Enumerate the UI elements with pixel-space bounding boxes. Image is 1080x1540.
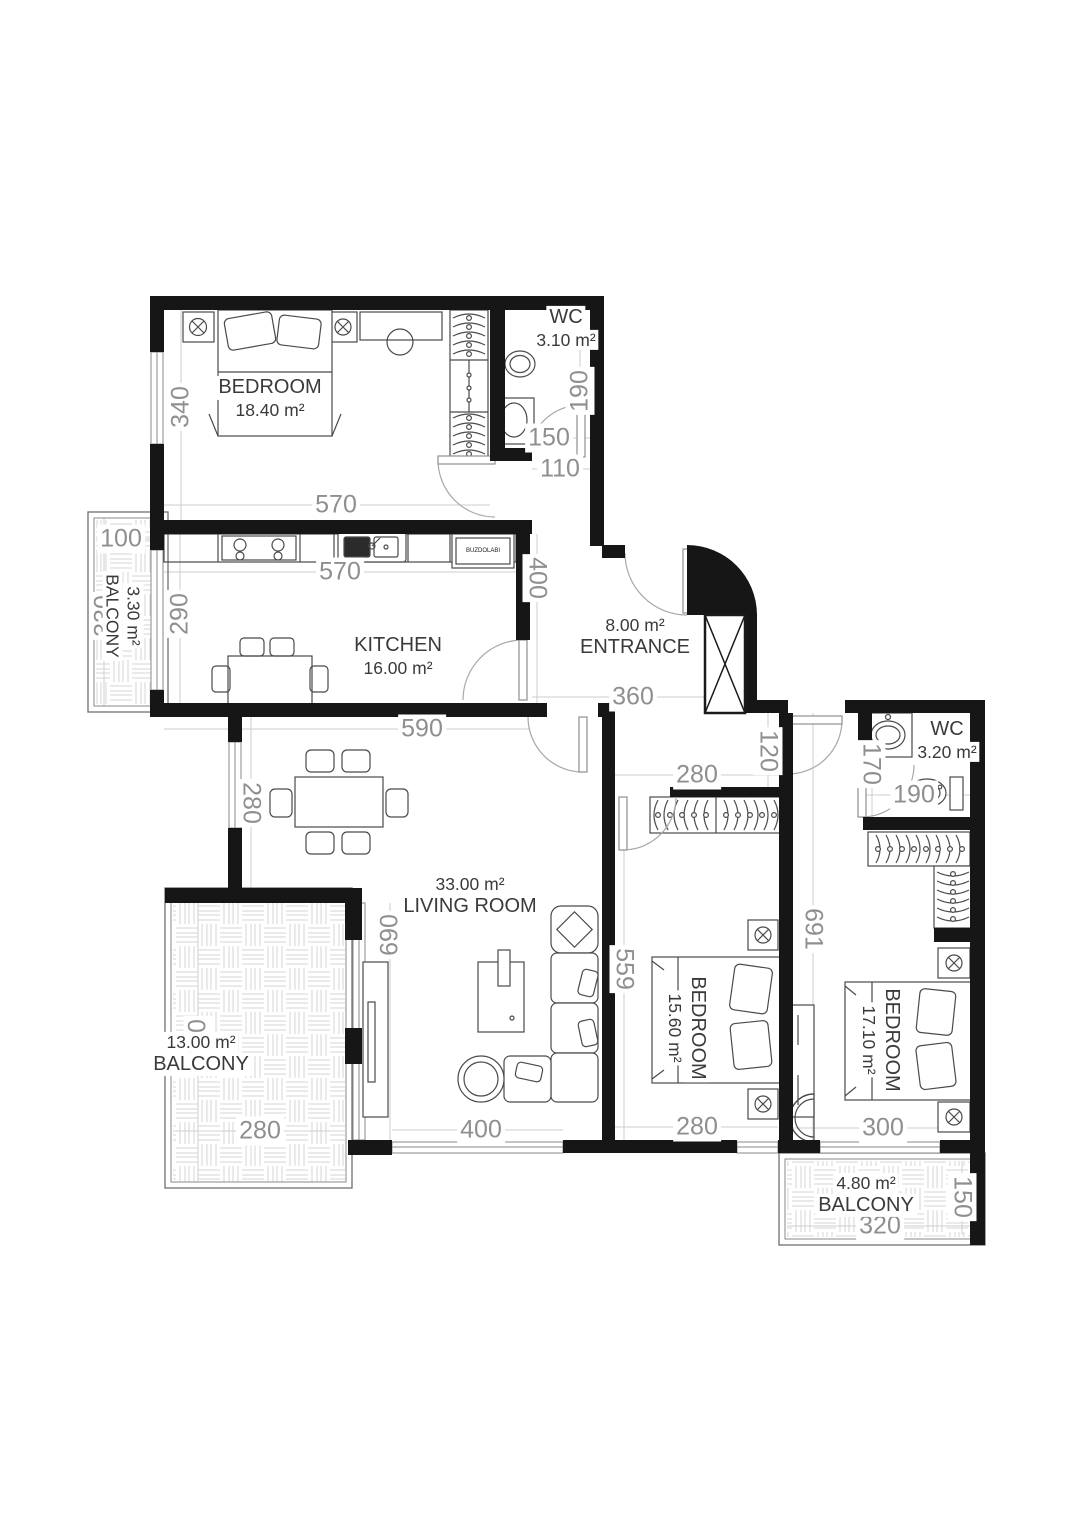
room-name: BEDROOM: [686, 973, 710, 1082]
wardrobe: [450, 310, 488, 457]
room-name: BEDROOM: [215, 376, 324, 400]
dim-label: 360: [609, 683, 657, 712]
room-label-bedroom-mid: BEDROOM 15.60 m²: [665, 973, 709, 1082]
room-area: 3.20 m²: [914, 741, 979, 762]
dining-table-set: [270, 750, 408, 854]
wardrobe: [934, 866, 972, 928]
room-area: 16.00 m²: [360, 657, 435, 678]
nightstand: [748, 1089, 778, 1119]
dresser: [360, 312, 442, 355]
dim-label: 120: [754, 727, 783, 775]
room-name: WC: [546, 306, 585, 330]
dim-label: 290: [166, 590, 195, 638]
dresser: [792, 1005, 814, 1117]
room-area: 18.40 m²: [232, 399, 307, 420]
room-label-wc-top: WC 3.10 m²: [533, 306, 598, 350]
kitchen-door-leaf: [519, 640, 527, 700]
dim-label: 690: [376, 911, 405, 959]
bedroom-tl-door-leaf: [438, 456, 495, 464]
dim-label: 110: [537, 455, 583, 484]
bedroom-mid-door-leaf: [619, 797, 627, 850]
window-kitchen-balcony: [151, 550, 163, 690]
bedroom-right-door-leaf: [788, 716, 842, 724]
room-name: BALCONY: [150, 1053, 252, 1077]
dim-label: 280: [673, 761, 721, 790]
dim-label: 280: [236, 1117, 284, 1146]
room-label-balcony-left: 3.30 m² BALCONY: [102, 571, 143, 661]
dim-label: 590: [398, 715, 446, 744]
wardrobe: [650, 797, 780, 833]
room-area: 8.00 m²: [602, 615, 667, 636]
floor-plan-canvas: BEDROOM 18.40 m² WC 3.10 m² KITCHEN 16.0…: [0, 0, 1080, 1540]
room-name: BALCONY: [815, 1194, 917, 1218]
fridge-label: BUZDOLABI: [466, 548, 500, 554]
room-area: 3.10 m²: [533, 329, 598, 350]
dim-label: 150: [948, 1173, 977, 1221]
room-label-bedroom-right: BEDROOM 17.10 m²: [859, 985, 903, 1094]
floor-plan-drawing: [0, 0, 1080, 1540]
dim-label: 190: [566, 367, 595, 415]
coffee-table: [478, 950, 524, 1032]
room-label-wc-right: WC 3.20 m²: [914, 718, 979, 762]
dim-label: 280: [673, 1113, 721, 1142]
room-area: 3.30 m²: [123, 583, 144, 648]
dim-label: 340: [167, 383, 196, 431]
room-label-bedroom-tl: BEDROOM 18.40 m²: [215, 376, 324, 420]
dim-label: 400: [457, 1116, 505, 1145]
room-area: 17.10 m²: [859, 1002, 880, 1077]
dim-label: 100: [97, 525, 145, 554]
dim-label: 570: [312, 491, 360, 520]
nightstand: [748, 920, 778, 950]
stove: [222, 536, 296, 560]
room-label-entrance: 8.00 m² ENTRANCE: [577, 615, 693, 659]
dim-label: 300: [859, 1114, 907, 1143]
dim-label: 190: [890, 781, 938, 810]
room-name: BALCONY: [102, 571, 123, 661]
nightstand: [938, 1102, 970, 1132]
dim-label: 150: [525, 424, 573, 453]
dim-label: 280: [237, 779, 266, 827]
dim-label: 559: [610, 945, 639, 993]
room-name: KITCHEN: [351, 634, 445, 658]
living-door-leaf: [579, 717, 587, 772]
room-label-balcony-bottom-right: 4.80 m² BALCONY: [815, 1173, 917, 1217]
elevator-shaft: [705, 615, 745, 713]
room-label-living-room: 33.00 m² LIVING ROOM: [400, 874, 539, 918]
dim-label: 400: [523, 554, 552, 602]
room-name: ENTRANCE: [577, 636, 693, 660]
room-area: 15.60 m²: [665, 990, 686, 1065]
dim-label: 170: [857, 740, 886, 788]
room-name: WC: [927, 718, 966, 742]
kitchen-table-set: [212, 638, 328, 704]
room-area: 4.80 m²: [833, 1173, 898, 1194]
window-bedroom-tl: [151, 352, 163, 444]
room-label-kitchen: KITCHEN 16.00 m²: [351, 634, 445, 678]
dim-label: 691: [799, 905, 828, 953]
window-bedroom-mid-bottom: [737, 1142, 778, 1153]
dim-label: 570: [316, 558, 364, 587]
nightstand: [938, 948, 970, 978]
room-name: LIVING ROOM: [400, 895, 539, 919]
wardrobe: [868, 832, 970, 866]
tv-unit: [363, 962, 388, 1117]
room-name: BEDROOM: [880, 985, 904, 1094]
nightstand: [330, 312, 357, 342]
room-label-balcony-bottom-left: 13.00 m² BALCONY: [150, 1032, 252, 1076]
room-area: 33.00 m²: [432, 874, 507, 895]
room-area: 13.00 m²: [163, 1032, 238, 1053]
nightstand: [183, 312, 214, 342]
window-bedroom-right-bottom: [820, 1142, 940, 1153]
